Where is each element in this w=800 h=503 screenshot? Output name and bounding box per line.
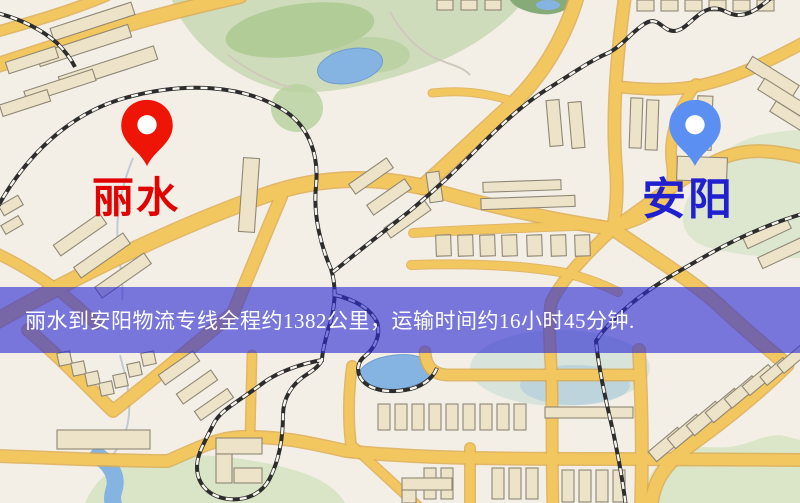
buildings-layer (0, 0, 800, 503)
route-info-text: 丽水到安阳物流专线全程约1382公里，运输时间约16小时45分钟. (25, 305, 635, 335)
route-info-banner: 丽水到安阳物流专线全程约1382公里，运输时间约16小时45分钟. (0, 287, 800, 353)
destination-label: 安阳 (642, 178, 734, 222)
destination-pin-hole (685, 115, 704, 134)
origin-pin-icon[interactable] (119, 99, 175, 167)
destination-pin-icon[interactable] (667, 99, 723, 167)
origin-label: 丽水 (92, 178, 180, 220)
map-canvas (0, 0, 800, 503)
map-screenshot: 丽水 安阳 丽水到安阳物流专线全程约1382公里，运输时间约16小时45分钟. (0, 0, 800, 503)
origin-pin-hole (137, 115, 156, 134)
